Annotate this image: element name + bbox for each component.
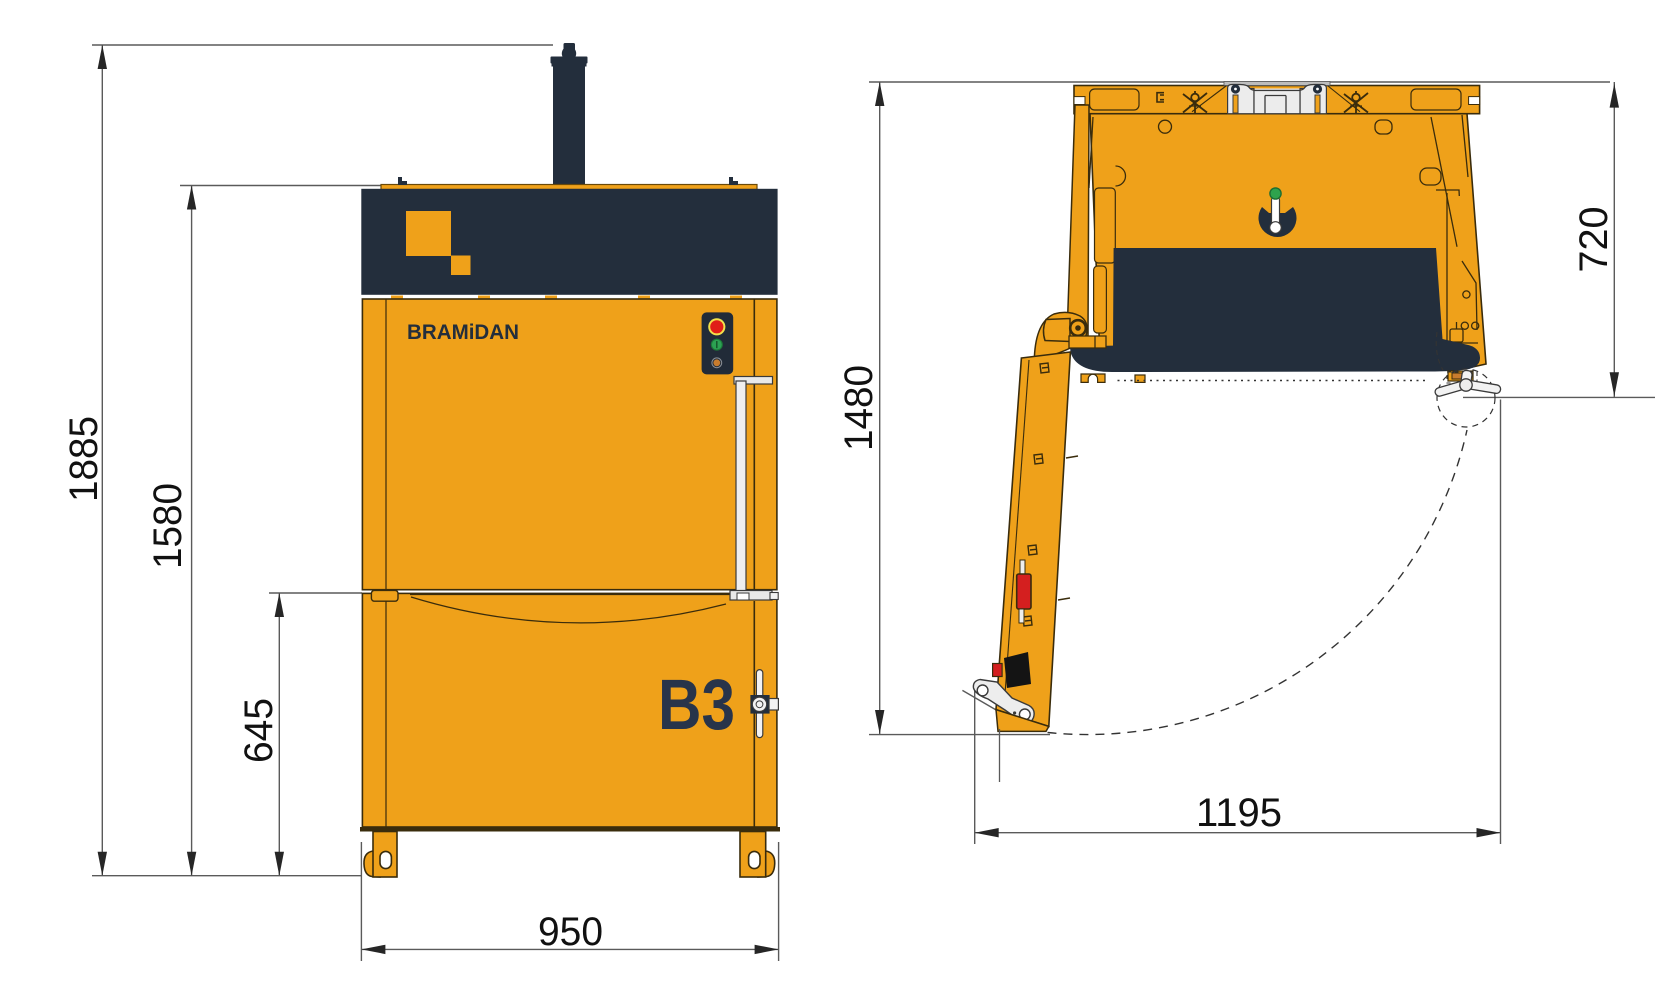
svg-text:1480: 1480 bbox=[837, 365, 881, 451]
svg-text:645: 645 bbox=[237, 698, 281, 763]
svg-text:720: 720 bbox=[1572, 207, 1616, 273]
svg-text:BRAMiDAN: BRAMiDAN bbox=[407, 321, 519, 344]
svg-text:1885: 1885 bbox=[62, 416, 106, 502]
svg-text:1580: 1580 bbox=[146, 483, 190, 569]
svg-text:950: 950 bbox=[538, 910, 603, 954]
svg-text:1195: 1195 bbox=[1196, 791, 1282, 835]
svg-text:B3: B3 bbox=[658, 666, 735, 745]
